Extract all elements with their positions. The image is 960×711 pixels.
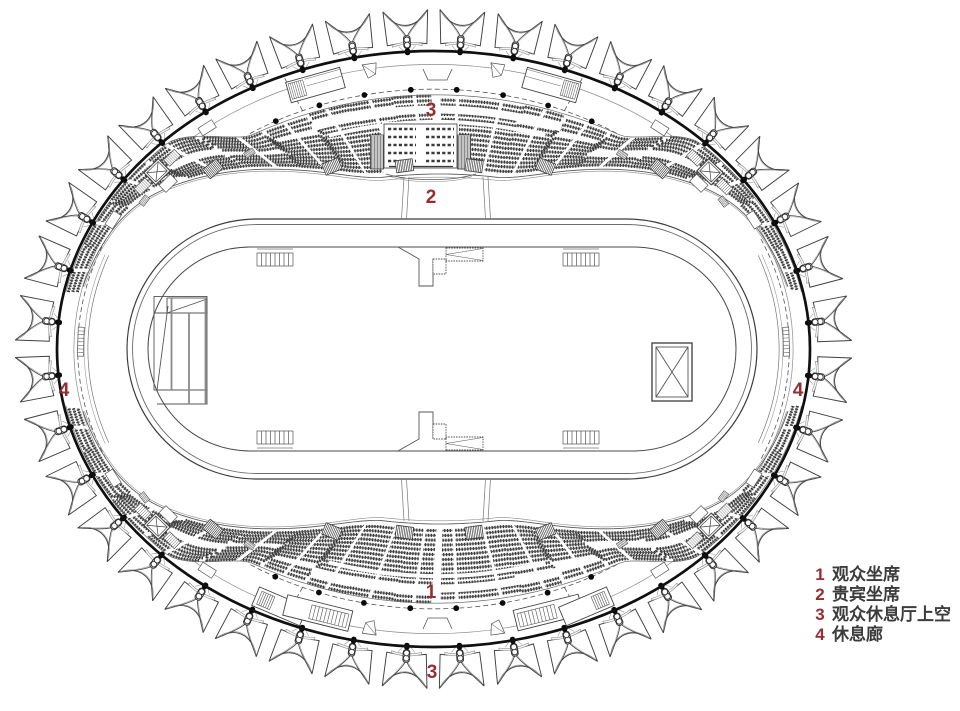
svg-text:2: 2 <box>815 585 824 604</box>
svg-text:2: 2 <box>426 187 437 208</box>
svg-text:4: 4 <box>59 380 70 401</box>
svg-text:观众坐席: 观众坐席 <box>831 564 900 584</box>
svg-text:休息廊: 休息廊 <box>831 624 883 644</box>
svg-text:贵宾坐席: 贵宾坐席 <box>832 584 900 604</box>
svg-text:3: 3 <box>427 662 438 683</box>
svg-text:4: 4 <box>815 625 825 644</box>
svg-text:3: 3 <box>426 100 437 121</box>
svg-text:1: 1 <box>426 582 437 603</box>
svg-text:观众休息厅上空: 观众休息厅上空 <box>831 604 951 624</box>
svg-text:1: 1 <box>815 565 824 584</box>
svg-text:3: 3 <box>815 605 824 624</box>
svg-text:4: 4 <box>793 380 804 401</box>
